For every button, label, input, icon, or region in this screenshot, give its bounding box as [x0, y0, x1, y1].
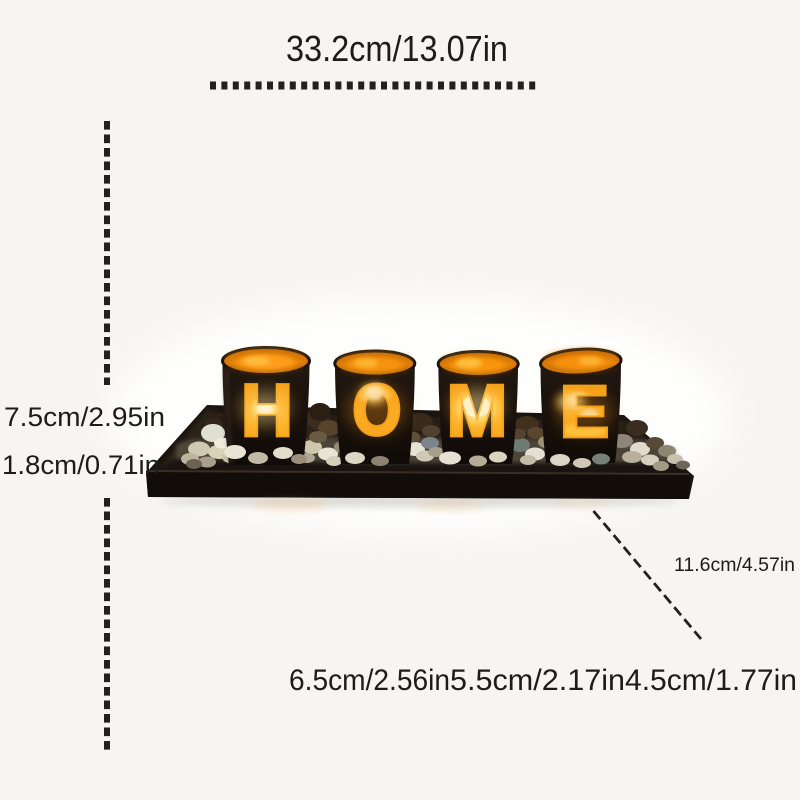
svg-text:6.5cm/2.56in: 6.5cm/2.56in	[289, 664, 450, 697]
svg-text:1.8cm/0.71in: 1.8cm/0.71in	[2, 450, 160, 480]
svg-text:33.2cm/13.07in: 33.2cm/13.07in	[286, 28, 508, 69]
svg-text:4.5cm/1.77in: 4.5cm/1.77in	[625, 664, 797, 697]
svg-text:7.5cm/2.95in: 7.5cm/2.95in	[4, 402, 165, 432]
svg-text:5.5cm/2.17in: 5.5cm/2.17in	[450, 664, 625, 697]
svg-text:11.6cm/4.57in: 11.6cm/4.57in	[674, 555, 795, 576]
